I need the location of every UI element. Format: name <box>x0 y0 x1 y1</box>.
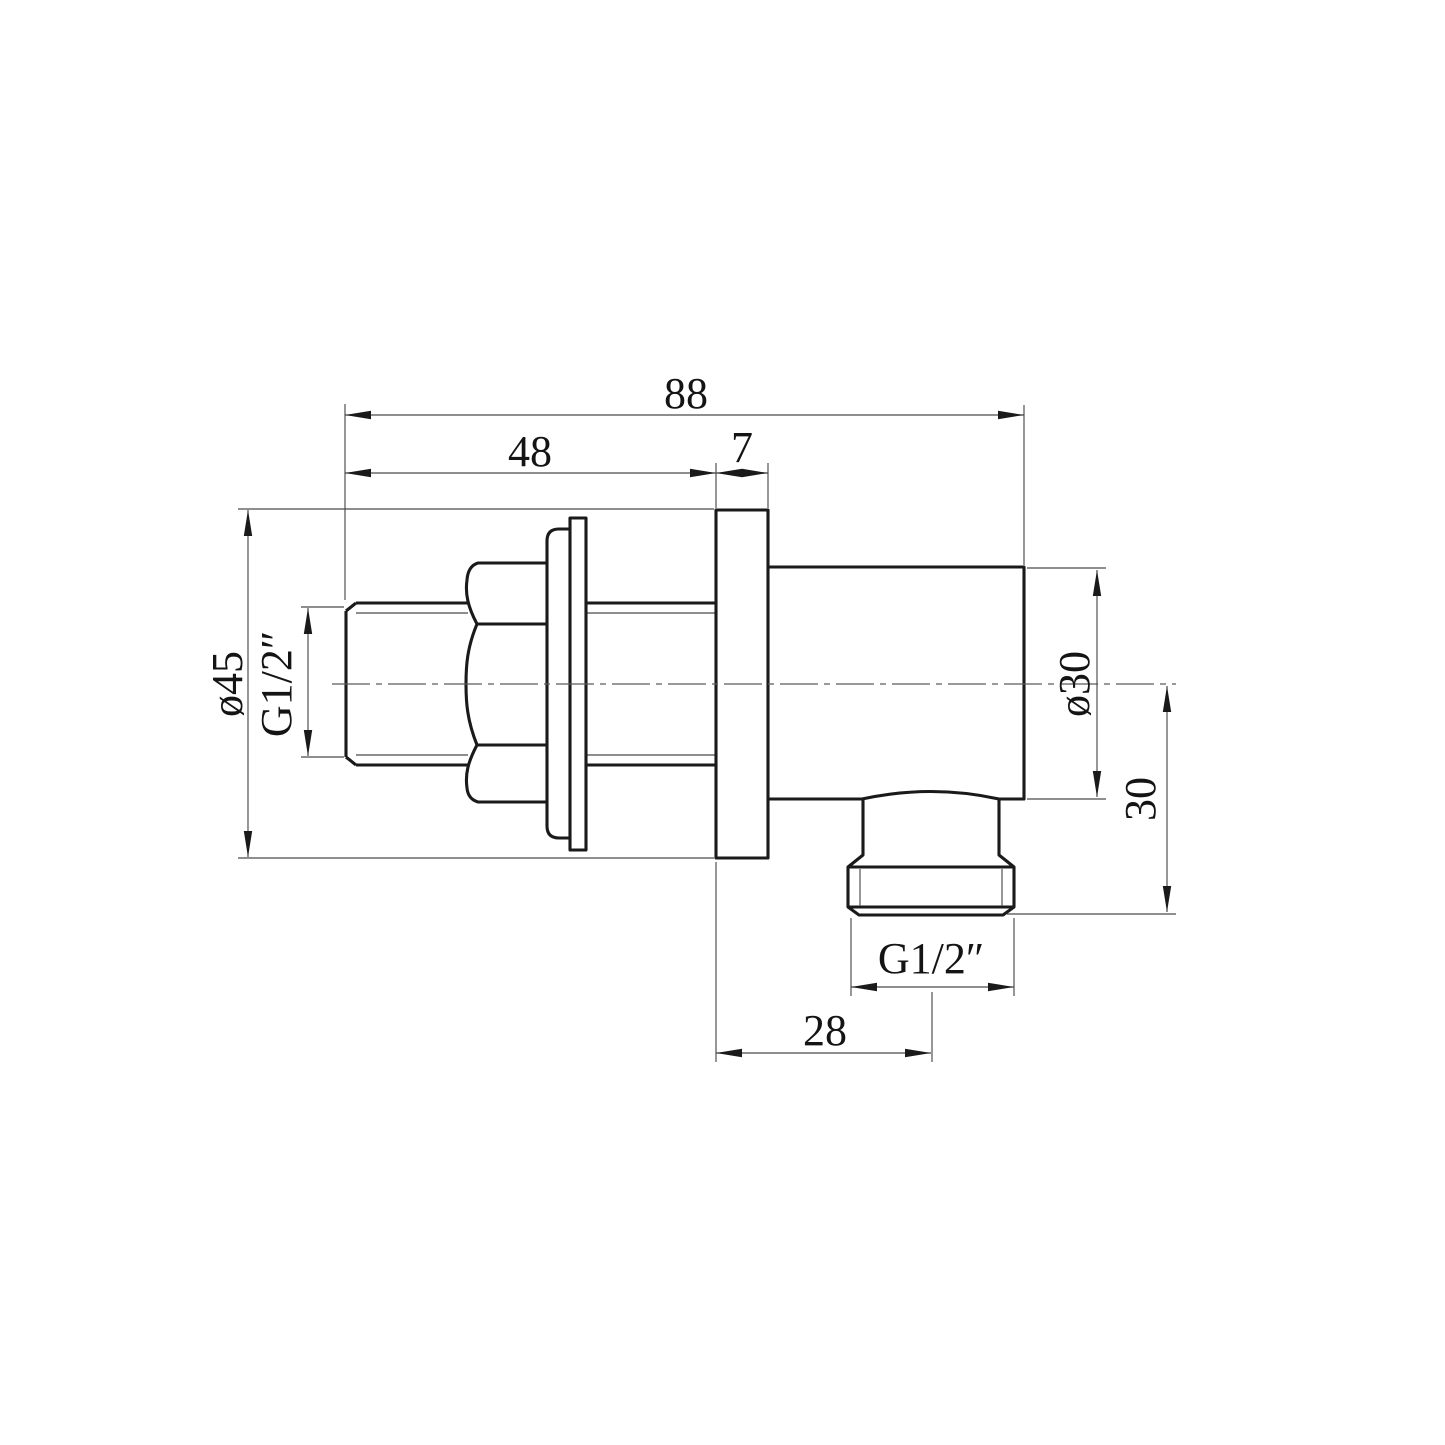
arrow-up-icon <box>1163 686 1171 712</box>
dim-label: ø45 <box>203 651 252 717</box>
outlet-thread <box>848 799 1014 915</box>
dim-outlet-thread: G1/2″ <box>851 918 1014 996</box>
dim-inlet-thread: G1/2″ <box>252 607 344 757</box>
technical-drawing: 88 48 7 ø45 G1/2″ ø30 <box>0 0 1445 1445</box>
dim-inlet-length: 48 <box>345 427 716 508</box>
arrow-left-icon <box>345 411 371 419</box>
arrow-up-icon <box>1093 570 1101 596</box>
arrow-down-icon <box>244 831 252 857</box>
dim-outlet-height: 30 <box>1007 686 1176 914</box>
dim-label: G1/2″ <box>252 631 301 737</box>
hex-locknut <box>466 563 547 802</box>
valve-body <box>768 567 1024 799</box>
arrow-down-icon <box>1163 886 1171 912</box>
arrow-right-icon <box>998 411 1024 419</box>
outlet-shoulder <box>862 792 999 800</box>
arrow-right-icon <box>690 469 716 477</box>
drawing-canvas: 88 48 7 ø45 G1/2″ ø30 <box>0 0 1445 1445</box>
arrow-up-icon <box>244 510 252 536</box>
arrow-down-icon <box>304 730 312 756</box>
dim-label: 88 <box>664 369 708 418</box>
arrow-down-icon <box>1093 771 1101 797</box>
dim-label: 30 <box>1116 777 1165 821</box>
dim-label: 7 <box>731 423 753 472</box>
arrow-right-icon <box>905 1049 931 1057</box>
dim-label: 48 <box>508 427 552 476</box>
dim-plate-thickness: 7 <box>716 423 768 508</box>
arrow-right-icon <box>988 983 1014 991</box>
dim-label: G1/2″ <box>878 934 984 983</box>
dim-label: ø30 <box>1050 651 1099 717</box>
dim-label: 28 <box>803 1006 847 1055</box>
arrow-left-icon <box>851 983 877 991</box>
dim-overall-length: 88 <box>345 369 1024 600</box>
arrow-left-icon <box>345 469 371 477</box>
arrow-up-icon <box>304 608 312 634</box>
arrow-left-icon <box>716 1049 742 1057</box>
